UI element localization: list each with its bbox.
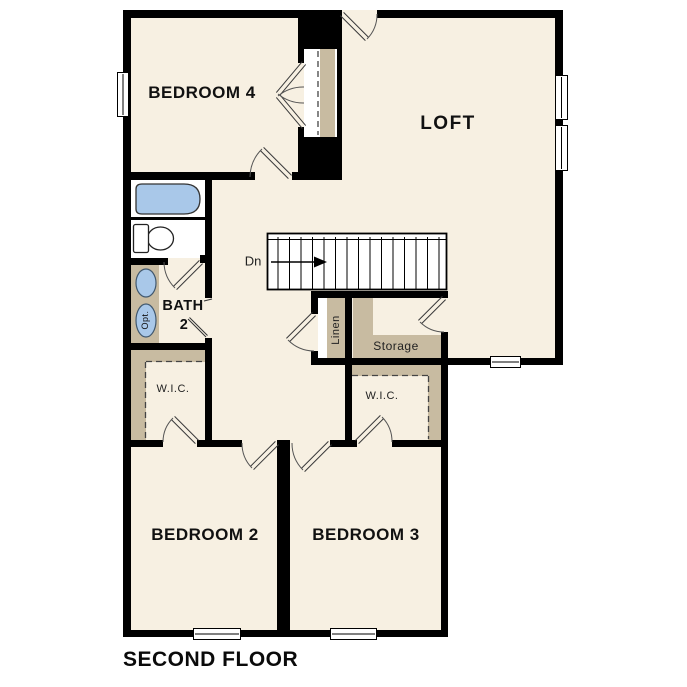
wall-segment [345, 291, 352, 358]
window [330, 628, 377, 640]
room-label-bedroom3: BEDROOM 3 [312, 525, 419, 545]
storage-floor [373, 298, 441, 335]
wall-segment [205, 172, 212, 298]
wall-segment [377, 10, 563, 18]
wic-left-floor [146, 362, 207, 440]
wall-segment [555, 10, 563, 365]
room-label-storage: Storage [373, 339, 419, 353]
wic-right-floor [352, 376, 428, 440]
wall-segment [298, 49, 304, 63]
chimney-block [298, 137, 342, 180]
window [555, 125, 568, 171]
wall-segment [311, 358, 563, 365]
wall-segment [345, 365, 352, 447]
wall-segment [441, 358, 448, 637]
wall-segment [200, 255, 212, 263]
wall-segment [311, 291, 318, 314]
vanity-counter [131, 262, 159, 344]
wall-segment [311, 351, 318, 360]
wall-segment [298, 127, 304, 137]
chimney-block [298, 10, 342, 49]
room-label-linen: Linen [330, 315, 342, 344]
room-label-wic-left: W.I.C. [157, 383, 190, 395]
bedroom4-closet-shelf-band [320, 49, 335, 137]
optional-sink-label: Opt. [140, 310, 150, 329]
wall-segment [123, 258, 168, 265]
wall-segment [131, 217, 205, 220]
wall-segment [441, 332, 448, 358]
stairs-direction-label: Dn [245, 254, 262, 269]
wall-segment [205, 338, 212, 447]
wall-segment [330, 440, 357, 447]
wall-segment [337, 49, 342, 137]
wall-segment [311, 291, 448, 298]
window [490, 356, 521, 368]
wall-segment [123, 343, 212, 350]
wall-segment [197, 440, 242, 447]
wall-segment [123, 172, 255, 180]
room-label-wic-right: W.I.C. [366, 390, 399, 402]
room-label-bedroom2: BEDROOM 2 [151, 525, 258, 545]
window [555, 75, 568, 120]
window [117, 72, 129, 117]
room-label-bath2-line2: 2 [180, 317, 189, 333]
plan-title: SECOND FLOOR [123, 648, 298, 672]
tub-niche [131, 180, 205, 217]
room-label-loft: LOFT [420, 113, 476, 135]
wall-segment [392, 440, 448, 447]
room-label-bath2-line1: BATH [162, 298, 203, 314]
second-floor-plan: BEDROOM 4 LOFT BATH 2 Dn Linen Storage W… [0, 0, 687, 687]
window [193, 628, 241, 640]
toilet-niche [131, 220, 205, 258]
room-label-bedroom4: BEDROOM 4 [148, 83, 255, 103]
wall-segment [277, 440, 290, 637]
wall-segment [123, 440, 163, 447]
